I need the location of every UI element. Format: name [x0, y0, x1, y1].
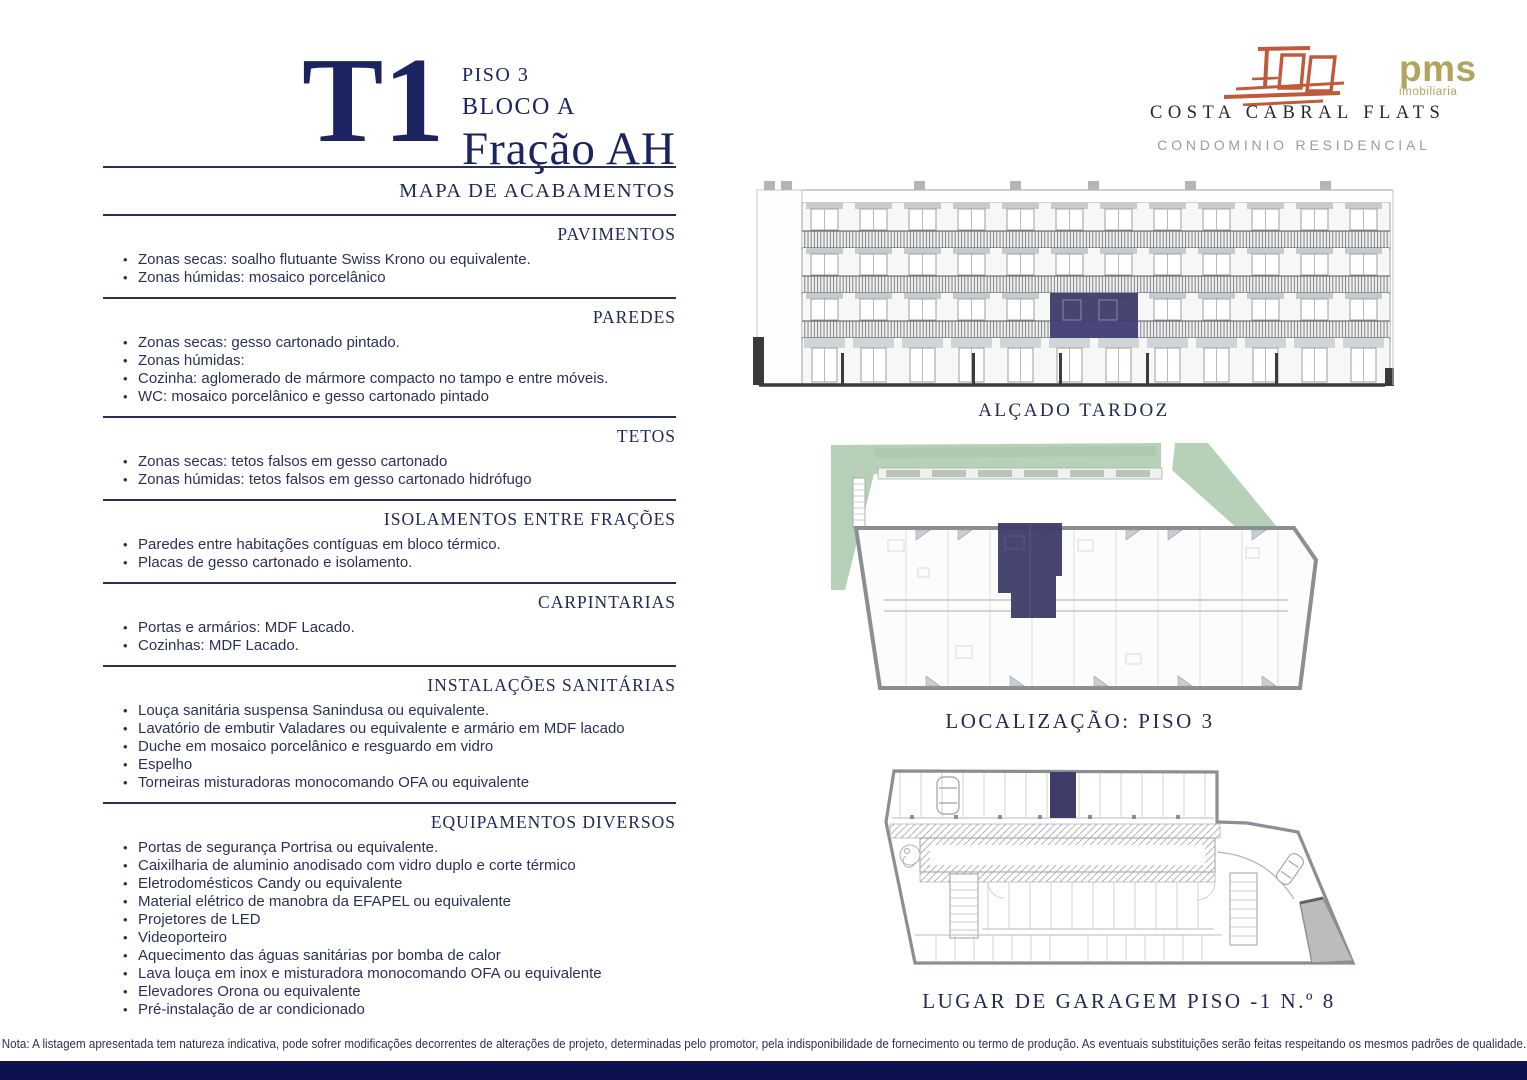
spec-item: Eletrodomésticos Candy ou equivalente: [123, 875, 676, 893]
section-title: PAREDES: [103, 307, 676, 328]
spec-item: Elevadores Orona ou equivalente: [123, 983, 676, 1001]
section-divider: [103, 582, 676, 584]
spec-item: Louça sanitária suspensa Sanindusa ou eq…: [123, 702, 676, 720]
spec-item: Zonas húmidas: mosaico porcelânico: [123, 269, 676, 287]
spec-item: Lava louça em inox e misturadora monocom…: [123, 965, 676, 983]
highlighted-parking-spot: [1050, 772, 1076, 818]
section-title: EQUIPAMENTOS DIVERSOS: [103, 812, 676, 833]
spec-item: Zonas secas: tetos falsos em gesso carto…: [123, 453, 676, 471]
building-outline: [856, 528, 1316, 688]
agency-name: pms: [1399, 54, 1477, 84]
spec-item: Portas de segurança Portrisa ou equivale…: [123, 839, 676, 857]
block-label: BLOCO A: [462, 94, 676, 121]
footer-bar: [0, 1061, 1527, 1080]
roof-chimneys: [764, 181, 1331, 190]
section-title: PAVIMENTOS: [103, 224, 676, 245]
spec-section: CARPINTARIAS Portas e armários: MDF Laca…: [103, 582, 676, 665]
spec-section: PAREDES Zonas secas: gesso cartonado pin…: [103, 297, 676, 416]
section-divider: [103, 214, 676, 216]
section-items: Portas e armários: MDF Lacado.Cozinhas: …: [103, 618, 676, 665]
elevation-figure: ALÇADO TARDOZ: [743, 172, 1405, 422]
finishes-column: MAPA DE ACABAMENTOS PAVIMENTOS Zonas sec…: [103, 166, 676, 1029]
spec-section: INSTALAÇÕES SANITÁRIAS Louça sanitária s…: [103, 665, 676, 802]
spec-item: Paredes entre habitações contíguas em bl…: [123, 536, 676, 554]
spec-item: Lavatório de embutir Valadares ou equiva…: [123, 720, 676, 738]
section-divider: [103, 499, 676, 501]
spec-item: Zonas húmidas:: [123, 352, 676, 370]
exterior-stairs: [853, 478, 865, 528]
stairs-left: [950, 874, 978, 938]
costa-cabral-logo-icon: [1222, 42, 1362, 106]
spec-item: Cozinha: aglomerado de mármore compacto …: [123, 370, 676, 388]
garage-drawing: [870, 757, 1388, 972]
section-items: Zonas secas: gesso cartonado pintado.Zon…: [103, 333, 676, 416]
spec-item: Duche em mosaico porcelânico e resguardo…: [123, 738, 676, 756]
spec-item: Zonas secas: soalho flutuante Swiss Kron…: [123, 251, 676, 269]
spec-item: WC: mosaico porcelânico e gesso cartonad…: [123, 388, 676, 406]
spec-item: Material elétrico de manobra da EFAPEL o…: [123, 893, 676, 911]
spec-item: Videoporteiro: [123, 929, 676, 947]
spec-section: PAVIMENTOS Zonas secas: soalho flutuante…: [103, 214, 676, 297]
spec-item: Cozinhas: MDF Lacado.: [123, 637, 676, 655]
spec-item: Placas de gesso cartonado e isolamento.: [123, 554, 676, 572]
section-items: Portas de segurança Portrisa ou equivale…: [103, 838, 676, 1029]
section-items: Paredes entre habitações contíguas em bl…: [103, 535, 676, 582]
section-title: CARPINTARIAS: [103, 592, 676, 613]
section-items: Louça sanitária suspensa Sanindusa ou eq…: [103, 701, 676, 802]
spec-sections: PAVIMENTOS Zonas secas: soalho flutuante…: [103, 214, 676, 1029]
stairs-right: [1230, 873, 1257, 945]
section-divider: [103, 802, 676, 804]
plan-drawing: [826, 440, 1334, 698]
header-divider: [103, 166, 676, 168]
location-plan-figure: LOCALIZAÇÃO: PISO 3: [826, 440, 1334, 734]
brand-name: COSTA CABRAL FLATS: [1150, 103, 1438, 124]
garage-caption: LUGAR DE GARAGEM PISO -1 N.º 8: [870, 989, 1388, 1014]
spec-section: TETOS Zonas secas: tetos falsos em gesso…: [103, 416, 676, 499]
hatched-wall: [890, 824, 1220, 838]
footer-note: Nota: A listagem apresentada tem naturez…: [1, 1036, 1525, 1051]
section-title: TETOS: [103, 426, 676, 447]
spec-item: Caixilharia de aluminio anodisado com vi…: [123, 857, 676, 875]
spec-item: Torneiras misturadoras monocomando OFA o…: [123, 774, 676, 792]
spec-item: Espelho: [123, 756, 676, 774]
spec-item: Aquecimento das águas sanitárias por bom…: [123, 947, 676, 965]
typology-title: T1: [302, 40, 444, 162]
spec-section: ISOLAMENTOS ENTRE FRAÇÕES Paredes entre …: [103, 499, 676, 582]
garage-plan-figure: LUGAR DE GARAGEM PISO -1 N.º 8: [870, 757, 1388, 1014]
section-title: ISOLAMENTOS ENTRE FRAÇÕES: [103, 509, 676, 530]
elevation-drawing: [743, 172, 1405, 387]
section-items: Zonas secas: soalho flutuante Swiss Kron…: [103, 250, 676, 297]
section-title: INSTALAÇÕES SANITÁRIAS: [103, 675, 676, 696]
spec-item: Zonas secas: gesso cartonado pintado.: [123, 334, 676, 352]
map-title: MAPA DE ACABAMENTOS: [103, 180, 676, 203]
brand-tagline: CONDOMINIO RESIDENCIAL: [1150, 137, 1438, 153]
section-divider: [103, 297, 676, 299]
spec-section: EQUIPAMENTOS DIVERSOS Portas de seguranç…: [103, 802, 676, 1029]
highlighted-unit-elevation: [1050, 293, 1138, 338]
spec-item: Portas e armários: MDF Lacado.: [123, 619, 676, 637]
agency-logo: pms imobiliaria: [1399, 54, 1477, 98]
spec-item: Projetores de LED: [123, 911, 676, 929]
floor-label: PISO 3: [462, 64, 676, 87]
spec-item: Zonas húmidas: tetos falsos em gesso car…: [123, 471, 676, 489]
elevation-caption: ALÇADO TARDOZ: [743, 400, 1405, 422]
section-divider: [103, 665, 676, 667]
plan-caption: LOCALIZAÇÃO: PISO 3: [826, 709, 1334, 734]
spec-item: Pré-instalação de ar condicionado: [123, 1001, 676, 1019]
section-divider: [103, 416, 676, 418]
section-items: Zonas secas: tetos falsos em gesso carto…: [103, 452, 676, 499]
